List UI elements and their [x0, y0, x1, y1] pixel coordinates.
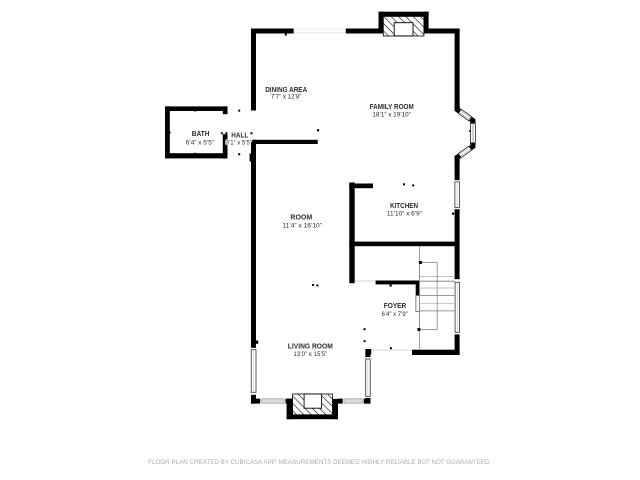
svg-text:18’1” x 19’10”: 18’1” x 19’10” — [372, 112, 411, 119]
svg-text:13’0” x 15’5”: 13’0” x 15’5” — [293, 351, 327, 358]
svg-text:LIVING ROOM: LIVING ROOM — [288, 342, 333, 351]
svg-text:11’4” x 16’10”: 11’4” x 16’10” — [282, 222, 322, 229]
svg-text:6’4” x 7’9”: 6’4” x 7’9” — [382, 311, 409, 318]
svg-text:FLOOR PLAN CREATED BY CUBICASA: FLOOR PLAN CREATED BY CUBICASA APP. MEAS… — [148, 459, 491, 466]
svg-text:FAMILY ROOM: FAMILY ROOM — [370, 102, 414, 111]
svg-text:3’1” x 5’5”: 3’1” x 5’5” — [226, 140, 253, 147]
svg-text:7’7” x 12’8”: 7’7” x 12’8” — [271, 94, 302, 101]
svg-text:FOYER: FOYER — [384, 301, 407, 310]
svg-text:11’10” x 6’9”: 11’10” x 6’9” — [387, 211, 423, 218]
svg-text:HALL: HALL — [231, 131, 248, 140]
svg-text:BATH: BATH — [192, 129, 210, 138]
svg-text:6’4” x 5’5”: 6’4” x 5’5” — [186, 140, 215, 147]
svg-text:KITCHEN: KITCHEN — [390, 201, 418, 210]
svg-text:ROOM: ROOM — [290, 212, 312, 221]
svg-text:DINING AREA: DINING AREA — [265, 85, 307, 94]
